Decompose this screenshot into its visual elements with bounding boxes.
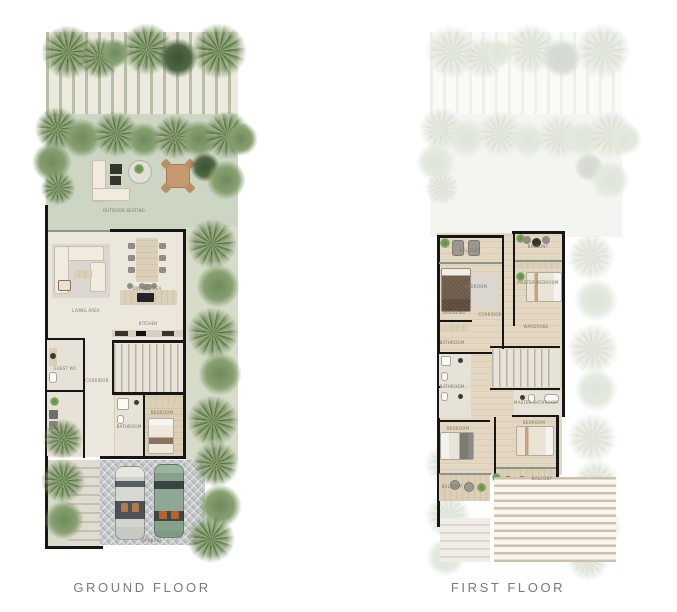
room-label: CORRIDOR <box>85 378 108 383</box>
room-label: MASTER BATHROOM <box>514 400 558 405</box>
shower <box>441 356 451 366</box>
car-green <box>154 464 184 538</box>
palm-tree <box>424 170 460 206</box>
appliance-oven <box>115 331 128 336</box>
palm-tree <box>192 440 240 488</box>
room-label: CORRIDOR <box>478 312 501 317</box>
master-corridor-wall <box>513 231 515 326</box>
palm-tree <box>40 170 76 206</box>
bottom-wall <box>100 456 186 459</box>
room-label: WARDROBE <box>523 324 548 329</box>
master-wardrobe <box>516 262 562 269</box>
master-bath-wall <box>512 415 559 417</box>
room-label: BALCONY <box>528 244 549 249</box>
stair-landing <box>552 349 560 387</box>
dining-chair <box>159 255 166 261</box>
room-label: BEDROOM <box>465 284 487 289</box>
right-wall-upper <box>562 231 565 417</box>
balcony-plant <box>477 483 486 492</box>
sink <box>134 400 139 405</box>
room-label: BEDROOM <box>447 426 469 431</box>
sink <box>458 358 463 363</box>
room-label: GUEST WC <box>53 366 76 371</box>
stair-wall-bottom <box>490 388 560 390</box>
bush <box>590 160 630 200</box>
room-label: OUTDOOR SEATING <box>103 208 145 213</box>
dining-chair <box>128 255 135 261</box>
palm-tree <box>186 514 236 564</box>
corridor-wall <box>112 340 114 394</box>
room-label: BALCONY <box>532 476 553 481</box>
room-label: BEDROOM <box>151 410 173 415</box>
indoor-plant <box>50 397 59 406</box>
appliance-hob <box>136 331 146 336</box>
ground-floor-plan: OUTDOOR SEATINGLIVING AREADINING AREAKIT… <box>40 22 244 572</box>
console-table <box>74 270 92 278</box>
pergola-roof <box>494 477 616 562</box>
room-label: BEDROOM <box>523 420 545 425</box>
balcony-plant <box>440 238 450 248</box>
daybed-plant <box>134 164 144 174</box>
staircase <box>492 349 552 387</box>
bedroom-corridor-wall <box>502 235 504 355</box>
palm-tree <box>566 232 616 282</box>
wardrobe <box>145 397 183 404</box>
ground-floor-caption: GROUND FLOOR <box>40 580 244 595</box>
plot-bottom-wall <box>45 546 103 549</box>
sofa-chaise <box>90 262 106 292</box>
exterior-steps <box>440 518 490 562</box>
wc-wall <box>47 338 85 340</box>
car-white <box>115 466 145 540</box>
bush <box>198 352 242 396</box>
toilet <box>441 372 448 381</box>
room-label: BALCONY <box>442 484 463 489</box>
stair-wall-top <box>112 340 183 343</box>
laundry-wall <box>47 390 85 392</box>
bush <box>100 38 130 68</box>
dining-table <box>136 238 158 282</box>
room-label: BATHROOM <box>117 424 142 429</box>
palm-tree <box>40 458 86 504</box>
room-label: DINING AREA <box>133 286 162 291</box>
bed <box>440 432 474 460</box>
floorplan-sheet: OUTDOOR SEATINGLIVING AREADINING AREAKIT… <box>0 0 677 612</box>
room-label: LIVING AREA <box>72 308 100 313</box>
outdoor-side-table <box>110 176 121 185</box>
bed <box>441 268 471 312</box>
appliance-fridge <box>162 331 174 336</box>
balcony-chair <box>464 482 474 492</box>
washer <box>49 410 58 419</box>
room-label: PARKING <box>143 538 162 543</box>
armchair <box>58 280 71 291</box>
room-label: BALCONY <box>460 248 481 253</box>
room-label: BATHROOM <box>440 340 465 345</box>
bush <box>196 264 240 308</box>
room-label: LAUNDRY <box>55 430 75 435</box>
room-label: BATHROOM <box>440 384 465 389</box>
room-label: KITCHEN <box>139 321 158 326</box>
living-glass-wall <box>47 230 113 232</box>
dressing-wardrobe <box>440 324 468 331</box>
dining-chair <box>159 267 166 273</box>
bush <box>574 368 618 412</box>
toilet <box>49 372 57 383</box>
bedroom-wall <box>437 420 490 422</box>
bush <box>484 38 514 68</box>
first-floor-plan: BALCONYBALCONYBEDROOMMASTER BEDROOMDRESS… <box>424 22 628 572</box>
toilet <box>441 392 448 401</box>
dining-chair <box>159 243 166 249</box>
bush <box>44 500 84 540</box>
bush <box>574 278 618 322</box>
palm-tree <box>190 22 248 80</box>
balcony-plant <box>516 234 525 243</box>
room-label: MASTER BEDROOM <box>517 280 558 285</box>
toilet <box>117 415 124 424</box>
master-bed <box>526 272 562 302</box>
balcony-glass <box>439 262 503 264</box>
outdoor-coffee-table <box>110 164 122 174</box>
bed <box>516 426 554 456</box>
dressing-wall <box>437 320 472 322</box>
bush <box>206 160 246 200</box>
bedroom-rug <box>472 274 498 308</box>
dining-chair <box>128 267 135 273</box>
outdoor-sofa-horizontal <box>92 188 130 201</box>
bush <box>224 122 258 156</box>
sink <box>458 394 463 399</box>
stair-wall-top <box>490 346 560 348</box>
top-wall <box>110 229 186 232</box>
balcony-chair <box>542 236 550 244</box>
palm-tree <box>186 218 238 270</box>
palm-tree <box>42 418 84 460</box>
first-floor-caption: FIRST FLOOR <box>406 580 610 595</box>
staircase <box>114 344 183 392</box>
cooktop <box>137 293 154 302</box>
palm-tree <box>574 22 632 80</box>
bush <box>608 122 642 156</box>
shower <box>117 398 129 410</box>
palm-tree <box>566 412 618 464</box>
top-wall-left <box>437 235 504 238</box>
bed <box>148 418 174 454</box>
dining-chair <box>128 243 135 249</box>
wc-sink <box>50 353 56 359</box>
room-label: DRESSING <box>443 310 465 315</box>
